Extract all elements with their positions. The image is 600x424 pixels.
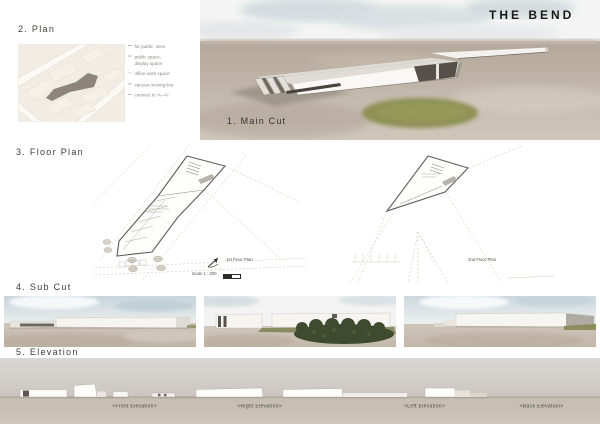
plan-note-text: public space, display space xyxy=(135,54,171,67)
floor-plan-1-drawing xyxy=(95,142,310,282)
presentation-board: THE BEND 1. Main Cut 2. Plan for public,… xyxy=(0,0,600,424)
dash-marker xyxy=(128,83,132,84)
floor-plan-2-caption: 2nd Floor Plan xyxy=(468,258,496,262)
left-elevation-caption: <Left Elevation> xyxy=(385,404,464,409)
site-map-image xyxy=(18,44,125,122)
plan-note: public space, display space xyxy=(128,54,216,67)
main-cut-heading: 1. Main Cut xyxy=(227,116,286,126)
dash-marker xyxy=(128,45,132,46)
plan-note-text: connect to 'A—K' xyxy=(135,93,205,100)
floor-plan-1-caption: 1st Floor Plan xyxy=(226,258,253,262)
front-elevation-caption: <Front Elevation> xyxy=(95,404,174,409)
plan-note: for public, semi xyxy=(128,44,216,51)
plan-note-text: office work space xyxy=(135,72,205,79)
sub-cut-render-2 xyxy=(204,296,396,347)
sub-cut-heading: 4. Sub Cut xyxy=(16,282,72,292)
plan-note: office work space xyxy=(128,72,216,79)
scale-bar xyxy=(223,274,241,279)
right-elevation-caption: <Right Elevation> xyxy=(220,404,299,409)
floor-plan-heading: 3. Floor Plan xyxy=(16,147,84,157)
floor-plan-1-scale-label: scale 1 : 300 xyxy=(192,272,217,276)
sub-cut-render-3 xyxy=(404,296,596,347)
back-elevation-caption: <Back Elevation> xyxy=(502,404,581,409)
dash-marker xyxy=(128,56,132,57)
north-arrow-icon xyxy=(206,255,222,269)
elevation-heading: 5. Elevation xyxy=(16,347,79,357)
plan-note: connect to 'A—K' xyxy=(128,93,216,100)
plan-notes: for public, semi public space, display s… xyxy=(128,44,216,103)
sub-cut-render-1 xyxy=(4,296,196,347)
dash-marker xyxy=(128,73,132,74)
dash-marker xyxy=(128,94,132,95)
plan-heading: 2. Plan xyxy=(18,24,55,34)
board-title: THE BEND xyxy=(489,8,574,22)
plan-note: various moving line xyxy=(128,82,216,89)
plan-note-text: for public, semi xyxy=(135,44,205,51)
plan-note-text: various moving line xyxy=(135,82,205,89)
elevation-drawing xyxy=(0,358,600,424)
floor-plan-2-drawing xyxy=(330,140,560,285)
